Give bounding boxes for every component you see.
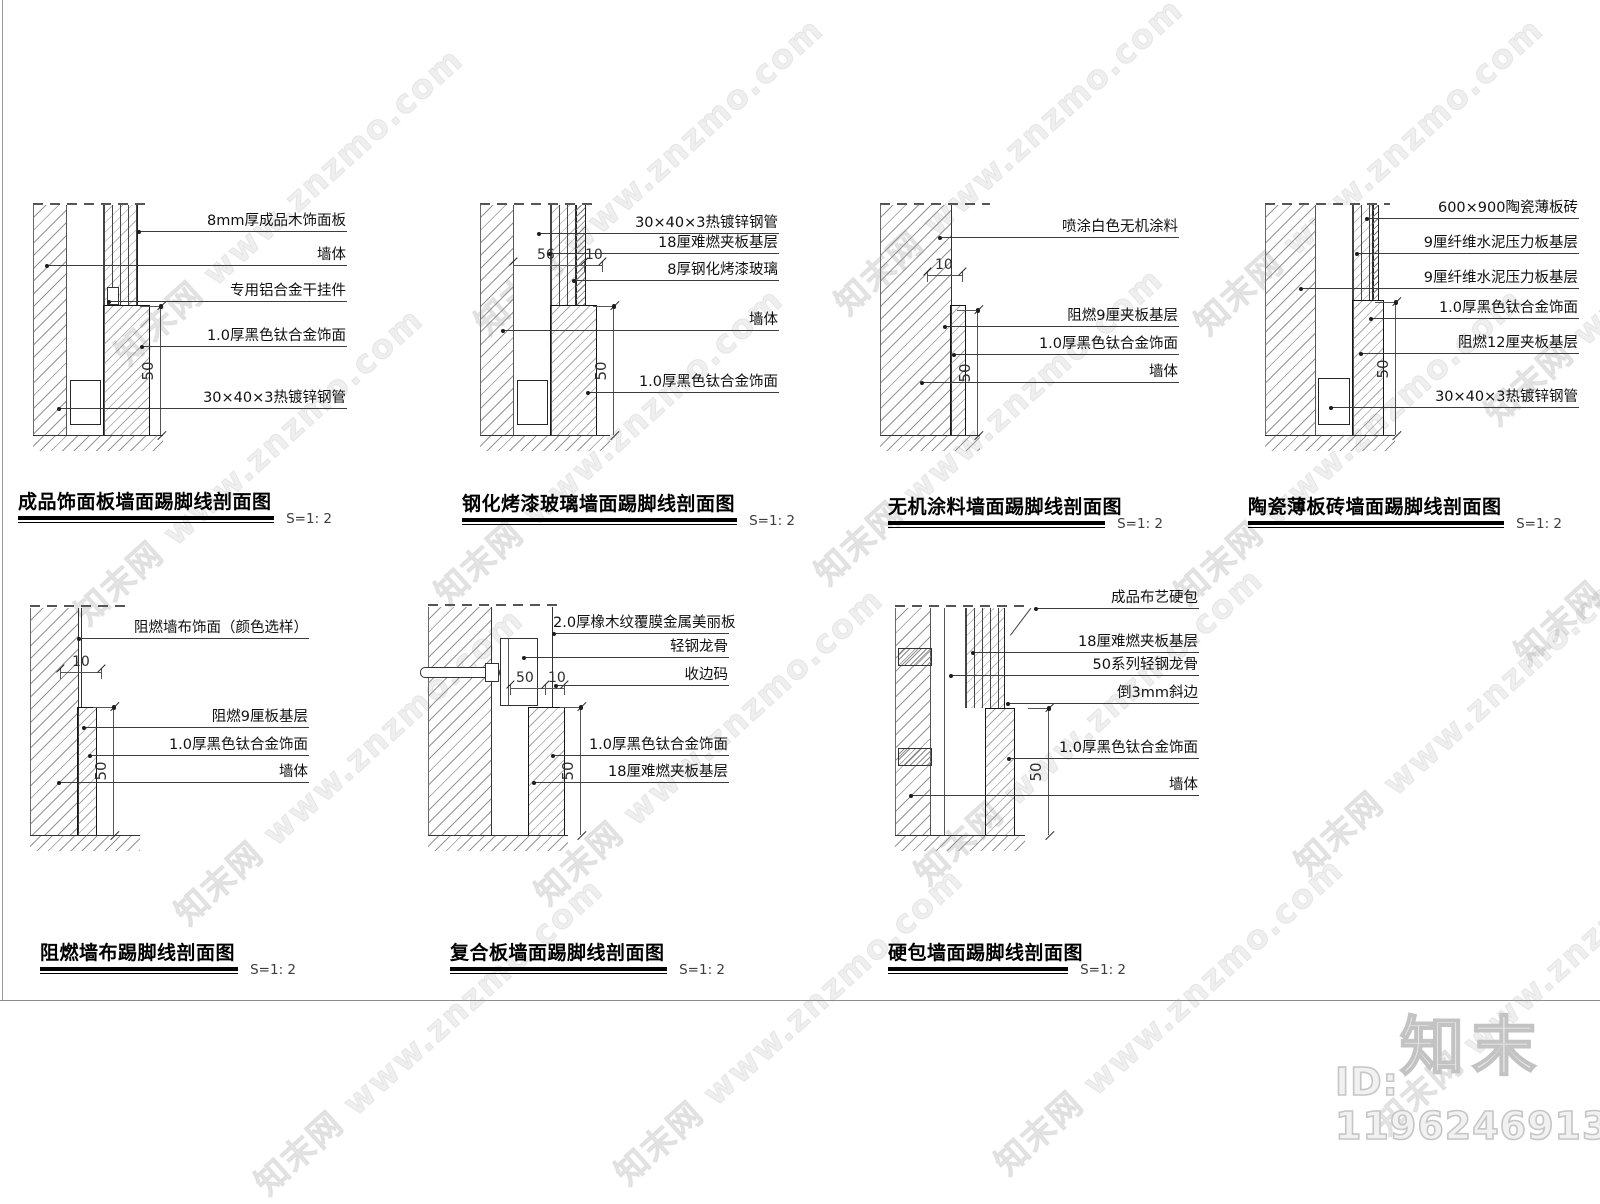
label-text: 30×40×3热镀锌钢管 [1435, 388, 1579, 408]
scale-label: S=1: 2 [286, 511, 332, 527]
label-text: 阻燃9厘板基层 [212, 708, 309, 728]
label-leader: 收边码 [555, 664, 729, 686]
label-leader: 30×40×3热镀锌钢管 [1330, 386, 1579, 408]
watermark-layer: 知末网 www.znzmo.com 知末网 www.znzmo.com 知末网 … [0, 0, 1600, 1131]
label-leader: 9厘纤维水泥压力板基层 [1300, 267, 1579, 289]
dimension-horizontal-50-10: 50 10 [510, 688, 565, 689]
label-text: 喷涂白色无机涂料 [1062, 218, 1179, 238]
break-line [428, 604, 563, 606]
label-text: 收边码 [685, 666, 730, 686]
label-text: 1.0厚黑色钛合金饰面 [1039, 335, 1179, 355]
label-text: 1.0厚黑色钛合金饰面 [1439, 299, 1579, 319]
label-text: 成品布艺硬包 [1111, 589, 1199, 609]
label-leader: 喷涂白色无机涂料 [939, 216, 1179, 238]
scale-label: S=1: 2 [1080, 962, 1126, 978]
label-leader: 18厘难燃夹板基层 [972, 631, 1199, 653]
floor-hatch [895, 835, 1025, 851]
label-leader: 2.0厚橡木纹覆膜金属美丽板 [553, 612, 729, 634]
detail-title-5: 阻燃墙布踢脚线剖面图 S=1: 2 [40, 938, 238, 974]
label-leader: 8厚钢化烤漆玻璃 [573, 259, 779, 281]
label-leader: 18厘难燃夹板基层 [533, 761, 729, 783]
detail-composite-board: 50 10 50 2.0厚橡木纹覆膜金属美丽板 轻钢龙骨 收边码 1.0厚黑色钛… [405, 590, 735, 870]
title-text: 无机涂料墙面踢脚线剖面图 [888, 492, 1105, 519]
label-text: 阻燃12厘夹板基层 [1458, 334, 1579, 354]
label-leader: 1.0厚黑色钛合金饰面 [89, 734, 309, 756]
label-text: 9厘纤维水泥压力板基层 [1424, 269, 1579, 289]
label-text: 600×900陶瓷薄板砖 [1438, 199, 1579, 219]
label-leader: 1.0厚黑色钛合金饰面 [552, 734, 729, 756]
label-leader: 30×40×3热镀锌钢管 [538, 212, 779, 234]
wall-hatch [30, 608, 79, 835]
label-leader: 墙体 [58, 761, 309, 783]
label-leader: 倒3mm斜边 [1007, 682, 1199, 704]
dimension-value: 10 [935, 257, 953, 273]
title-text: 成品饰面板墙面踢脚线剖面图 [18, 487, 274, 514]
label-leader: 专用铝合金干挂件 [108, 280, 347, 302]
floor-hatch [1265, 435, 1395, 451]
scale-label: S=1: 2 [679, 962, 725, 978]
bolt-nut [485, 663, 499, 682]
detail-inorganic-coating: 10 50 喷涂白色无机涂料 阻燃9厘夹板基层 1.0厚黑色钛合金饰面 墙体 [855, 195, 1185, 465]
floor-hatch [428, 835, 568, 851]
title-text: 钢化烤漆玻璃墙面踢脚线剖面图 [462, 489, 737, 516]
label-leader: 1.0厚黑色钛合金饰面 [953, 333, 1179, 355]
label-text: 8厚钢化烤漆玻璃 [667, 261, 779, 281]
steel-tube-section [517, 380, 548, 425]
label-text: 1.0厚黑色钛合金饰面 [207, 327, 347, 347]
label-leader: 600×900陶瓷薄板砖 [1366, 197, 1579, 219]
label-text: 墙体 [1169, 776, 1199, 796]
wall-hatch [880, 205, 952, 435]
label-leader: 1.0厚黑色钛合金饰面 [1370, 297, 1579, 319]
label-leader: 墙体 [502, 309, 779, 331]
wall-hatch [895, 608, 932, 835]
label-text: 2.0厚橡木纹覆膜金属美丽板 [553, 614, 737, 634]
label-leader: 8mm厚成品木饰面板 [138, 210, 347, 232]
break-line [895, 605, 1030, 607]
watermark-text: 知末网 www.znzmo.com [982, 844, 1352, 1184]
wall-hatch [1265, 205, 1317, 435]
watermark-text: 知末网 www.znzmo.com [1282, 544, 1600, 884]
skirting-section [985, 708, 1015, 836]
label-text: 9厘纤维水泥压力板基层 [1424, 234, 1579, 254]
scale-label: S=1: 2 [1117, 516, 1163, 532]
watermark-text: 知末网 www.znzmo.com [242, 864, 612, 1204]
detail-title-2: 钢化烤漆玻璃墙面踢脚线剖面图 S=1: 2 [462, 489, 737, 525]
dimension-value: 50 [516, 670, 534, 686]
label-text: 专用铝合金干挂件 [230, 282, 347, 302]
image-id-label: ID: 1196246913 [1335, 1060, 1600, 1148]
floor-hatch [33, 435, 163, 451]
scale-label: S=1: 2 [1516, 516, 1562, 532]
label-text: 18厘难燃夹板基层 [1078, 633, 1199, 653]
detail-finished-veneer-panel: 50 8mm厚成品木饰面板 墙体 专用铝合金干挂件 1.0厚黑色钛合金饰面 30… [8, 195, 353, 465]
label-leader: 墙体 [921, 361, 1179, 383]
label-leader: 30×40×3热镀锌钢管 [58, 387, 347, 409]
dimension-vertical-50: 50 [1048, 708, 1049, 835]
label-text: 墙体 [279, 763, 309, 783]
label-leader: 18厘难燃夹板基层 [549, 232, 779, 254]
label-leader: 50系列轻钢龙骨 [950, 654, 1199, 676]
title-text: 硬包墙面踢脚线剖面图 [888, 938, 1068, 965]
wall-bracket [898, 648, 932, 666]
detail-wall-fabric: 10 50 阻燃墙布饰面（颜色选样） 阻燃9厘板基层 1.0厚黑色钛合金饰面 墙… [15, 590, 315, 870]
label-text: 1.0厚黑色钛合金饰面 [1059, 739, 1199, 759]
label-leader: 1.0厚黑色钛合金饰面 [1008, 737, 1199, 759]
detail-ceramic-thin-tile: 50 600×900陶瓷薄板砖 9厘纤维水泥压力板基层 9厘纤维水泥压力板基层 … [1240, 195, 1585, 465]
stud-column [930, 608, 945, 835]
dimension-horizontal-10: 10 [927, 275, 963, 276]
label-text: 50系列轻钢龙骨 [1093, 656, 1199, 676]
label-leader: 轻钢龙骨 [523, 636, 729, 658]
floor-hatch [480, 435, 610, 451]
dimension-value: 10 [72, 654, 90, 670]
scale-label: S=1: 2 [250, 962, 296, 978]
label-leader: 1.0厚黑色钛合金饰面 [141, 325, 347, 347]
dimension-vertical-50: 50 [1395, 302, 1396, 435]
cad-sheet-skirting-details: { "page": { "watermark": { "text": "知末网 … [0, 0, 1600, 1131]
sheet-border-bottom [0, 1000, 1600, 1001]
label-text: 墙体 [749, 311, 779, 331]
wall-hatch [428, 607, 492, 835]
floor-hatch [880, 435, 980, 451]
detail-title-3: 无机涂料墙面踢脚线剖面图 S=1: 2 [888, 492, 1105, 528]
label-text: 倒3mm斜边 [1117, 684, 1199, 704]
break-line [30, 605, 130, 607]
label-text: 阻燃9厘夹板基层 [1067, 307, 1179, 327]
label-leader: 阻燃9厘板基层 [83, 706, 309, 728]
detail-hard-upholstery: 50 成品布艺硬包 18厘难燃夹板基层 50系列轻钢龙骨 倒3mm斜边 1.0厚… [875, 590, 1205, 870]
label-text: 18厘难燃夹板基层 [658, 234, 779, 254]
dimension-value: 50 [139, 361, 157, 380]
label-text: 1.0厚黑色钛合金饰面 [589, 736, 729, 756]
floor-hatch [30, 835, 140, 851]
label-text: 30×40×3热镀锌钢管 [203, 389, 347, 409]
label-text: 轻钢龙骨 [670, 638, 729, 658]
label-leader: 阻燃墙布饰面（颜色选样） [78, 617, 309, 639]
title-text: 阻燃墙布踢脚线剖面图 [40, 938, 238, 965]
detail-title-1: 成品饰面板墙面踢脚线剖面图 S=1: 2 [18, 487, 274, 523]
watermark-text: 知末网 www.znzmo.com [602, 854, 972, 1194]
detail-title-6: 复合板墙面踢脚线剖面图 S=1: 2 [450, 938, 667, 974]
wall-bracket [898, 748, 932, 766]
label-leader: 成品布艺硬包 [1035, 587, 1199, 609]
detail-title-4: 陶瓷薄板砖墙面踢脚线剖面图 S=1: 2 [1248, 492, 1504, 528]
title-text: 陶瓷薄板砖墙面踢脚线剖面图 [1248, 492, 1504, 519]
sheet-border-left [2, 0, 3, 1001]
label-leader: 墙体 [46, 244, 347, 266]
label-text: 阻燃墙布饰面（颜色选样） [134, 619, 309, 639]
label-leader: 阻燃12厘夹板基层 [1360, 332, 1579, 354]
label-leader: 阻燃9厘夹板基层 [944, 305, 1179, 327]
title-text: 复合板墙面踢脚线剖面图 [450, 938, 667, 965]
label-text: 8mm厚成品木饰面板 [207, 212, 347, 232]
label-text: 1.0厚黑色钛合金饰面 [169, 736, 309, 756]
dimension-horizontal-10: 10 [60, 672, 102, 673]
label-text: 1.0厚黑色钛合金饰面 [639, 373, 779, 393]
detail-title-7: 硬包墙面踢脚线剖面图 S=1: 2 [888, 938, 1068, 974]
label-leader: 9厘纤维水泥压力板基层 [1356, 232, 1579, 254]
scale-label: S=1: 2 [749, 513, 795, 529]
dimension-value: 50 [1374, 359, 1392, 378]
label-text: 墙体 [1149, 363, 1179, 383]
label-leader: 墙体 [910, 774, 1199, 796]
detail-lacquered-glass: 56 10 50 30×40×3热镀锌钢管 18厘难燃夹板基层 8厚钢化烤漆玻璃… [455, 195, 785, 465]
label-text: 墙体 [317, 246, 347, 266]
label-text: 18厘难燃夹板基层 [608, 763, 729, 783]
label-leader: 1.0厚黑色钛合金饰面 [587, 371, 779, 393]
